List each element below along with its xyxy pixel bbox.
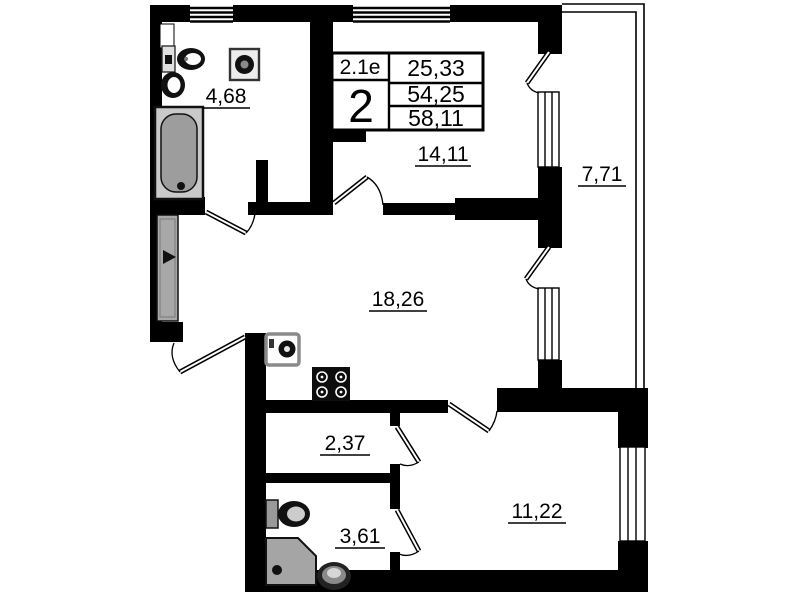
wall-hall-right-b (390, 464, 400, 509)
bathtub-icon (155, 107, 203, 199)
label-bathroom-top: 4,68 (206, 85, 247, 108)
wall-niche (160, 24, 174, 48)
wall-right-c (538, 360, 562, 390)
floor-plan-canvas: 2.1е 2 25,33 54,25 58,11 4,68 14,11 7,71… (0, 0, 799, 600)
wall-bathroom-right (310, 5, 333, 215)
window-bedroom-bottom (620, 447, 645, 541)
title-block-layout-code: 2.1е (340, 56, 381, 79)
wall-hall-top (245, 400, 448, 413)
label-hall: 2,37 (325, 432, 366, 455)
wall-right-b (538, 167, 562, 248)
label-bedroom-bottom: 11,22 (512, 500, 563, 523)
stove-icon (312, 367, 350, 401)
title-block-area-total: 58,11 (408, 105, 464, 131)
title-block-area-main: 54,25 (407, 81, 465, 107)
sink-bottom-icon (317, 562, 351, 590)
washing-machine-icon (230, 49, 259, 80)
window-balcony-top (538, 92, 559, 167)
title-block-room-count: 2 (348, 80, 374, 132)
label-bedroom-top: 14,11 (418, 143, 469, 166)
wall-mid-b (383, 203, 455, 215)
wall-lower-left (245, 333, 266, 592)
window-balcony-bottom (538, 288, 559, 360)
wall-hall-right-c (390, 552, 400, 572)
wall-left-end-post (150, 322, 183, 342)
wall-right-a (538, 19, 562, 54)
wall-hall-bottom (266, 473, 390, 483)
label-living-room: 18,26 (372, 288, 425, 311)
wall-hall-right-a (390, 412, 400, 426)
label-bathroom-bottom: 3,61 (340, 525, 381, 548)
wall-bedroom-right-a (618, 388, 648, 448)
washbasin-pedestal-icon (162, 46, 175, 72)
toilet-icon (161, 72, 185, 98)
entrance-door (157, 215, 178, 321)
title-block: 2.1е 2 25,33 54,25 58,11 (332, 53, 483, 132)
wall-stub (256, 160, 268, 208)
sink-icon (177, 48, 205, 70)
label-balcony: 7,71 (582, 163, 623, 186)
toilet-bottom-icon (266, 500, 310, 528)
vent-block-left (190, 5, 233, 22)
wall-bedroom-right-b (618, 541, 648, 592)
floor-plan-page: 2.1е 2 25,33 54,25 58,11 4,68 14,11 7,71… (0, 0, 799, 600)
wall-mid-a (248, 202, 333, 215)
vent-block-right (353, 5, 450, 22)
kitchen-sink-icon (266, 334, 299, 365)
title-block-area-living: 25,33 (407, 55, 465, 81)
